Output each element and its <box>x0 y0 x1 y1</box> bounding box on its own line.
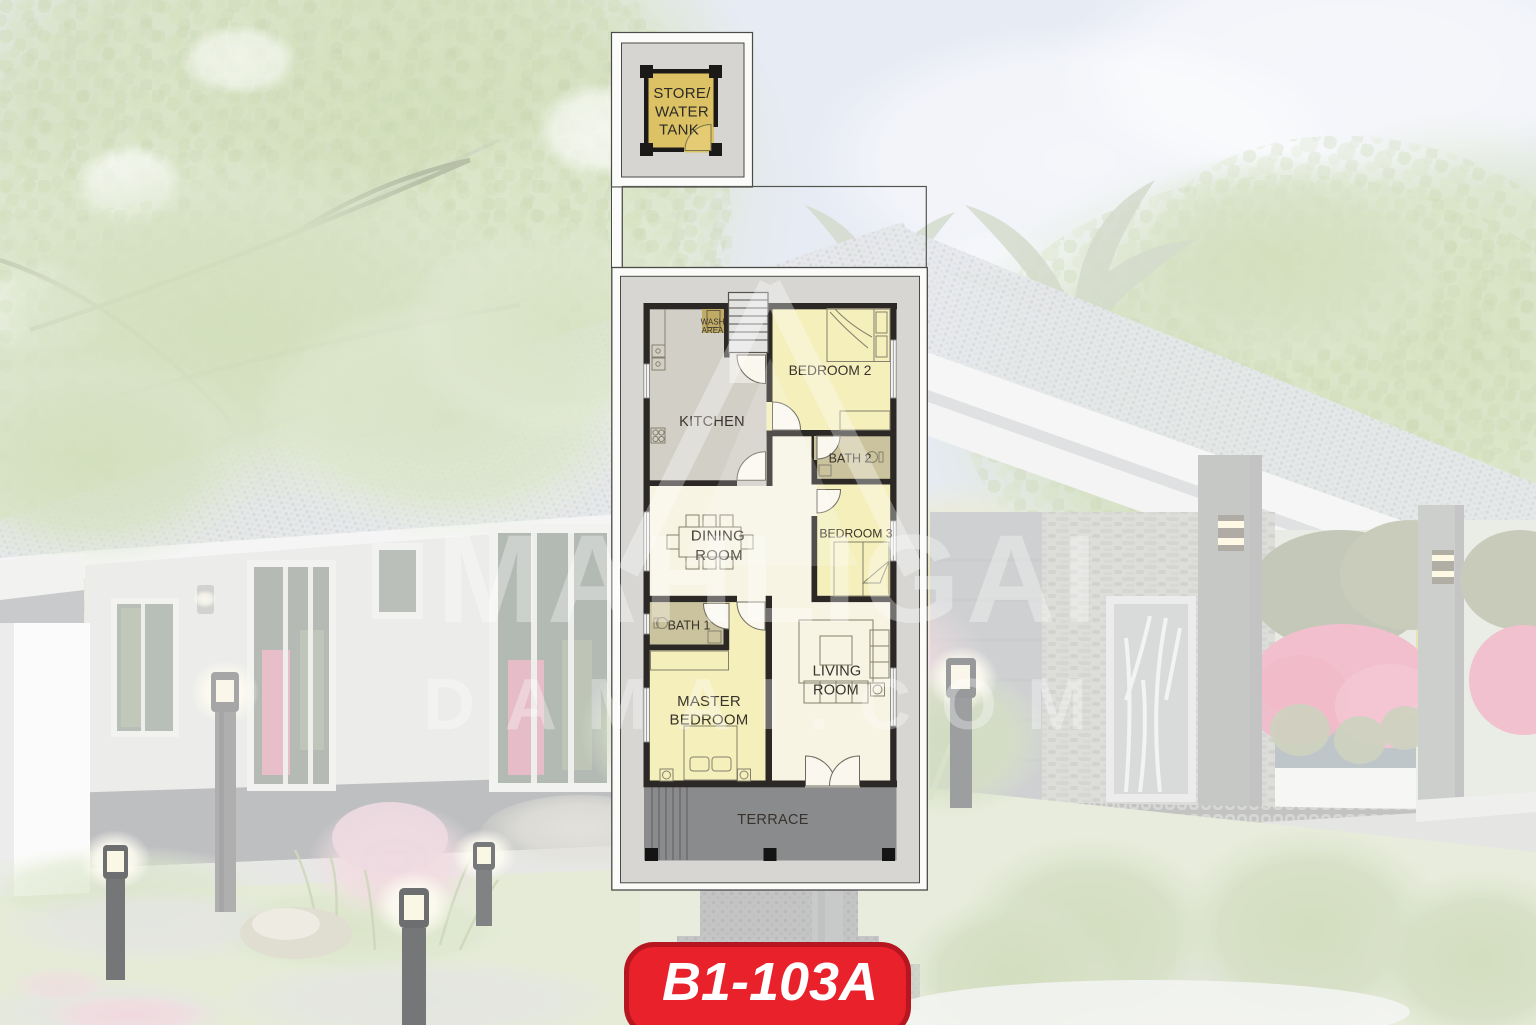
svg-text:MAHLIGAI: MAHLIGAI <box>437 510 1103 649</box>
svg-text:STORE/: STORE/ <box>653 85 711 102</box>
svg-text:WATER: WATER <box>655 104 709 121</box>
svg-text:TERRACE: TERRACE <box>737 812 808 828</box>
svg-text:DAMAI.COM: DAMAI.COM <box>423 665 1117 745</box>
svg-text:AREA: AREA <box>702 326 724 335</box>
svg-text:TANK: TANK <box>659 122 699 139</box>
